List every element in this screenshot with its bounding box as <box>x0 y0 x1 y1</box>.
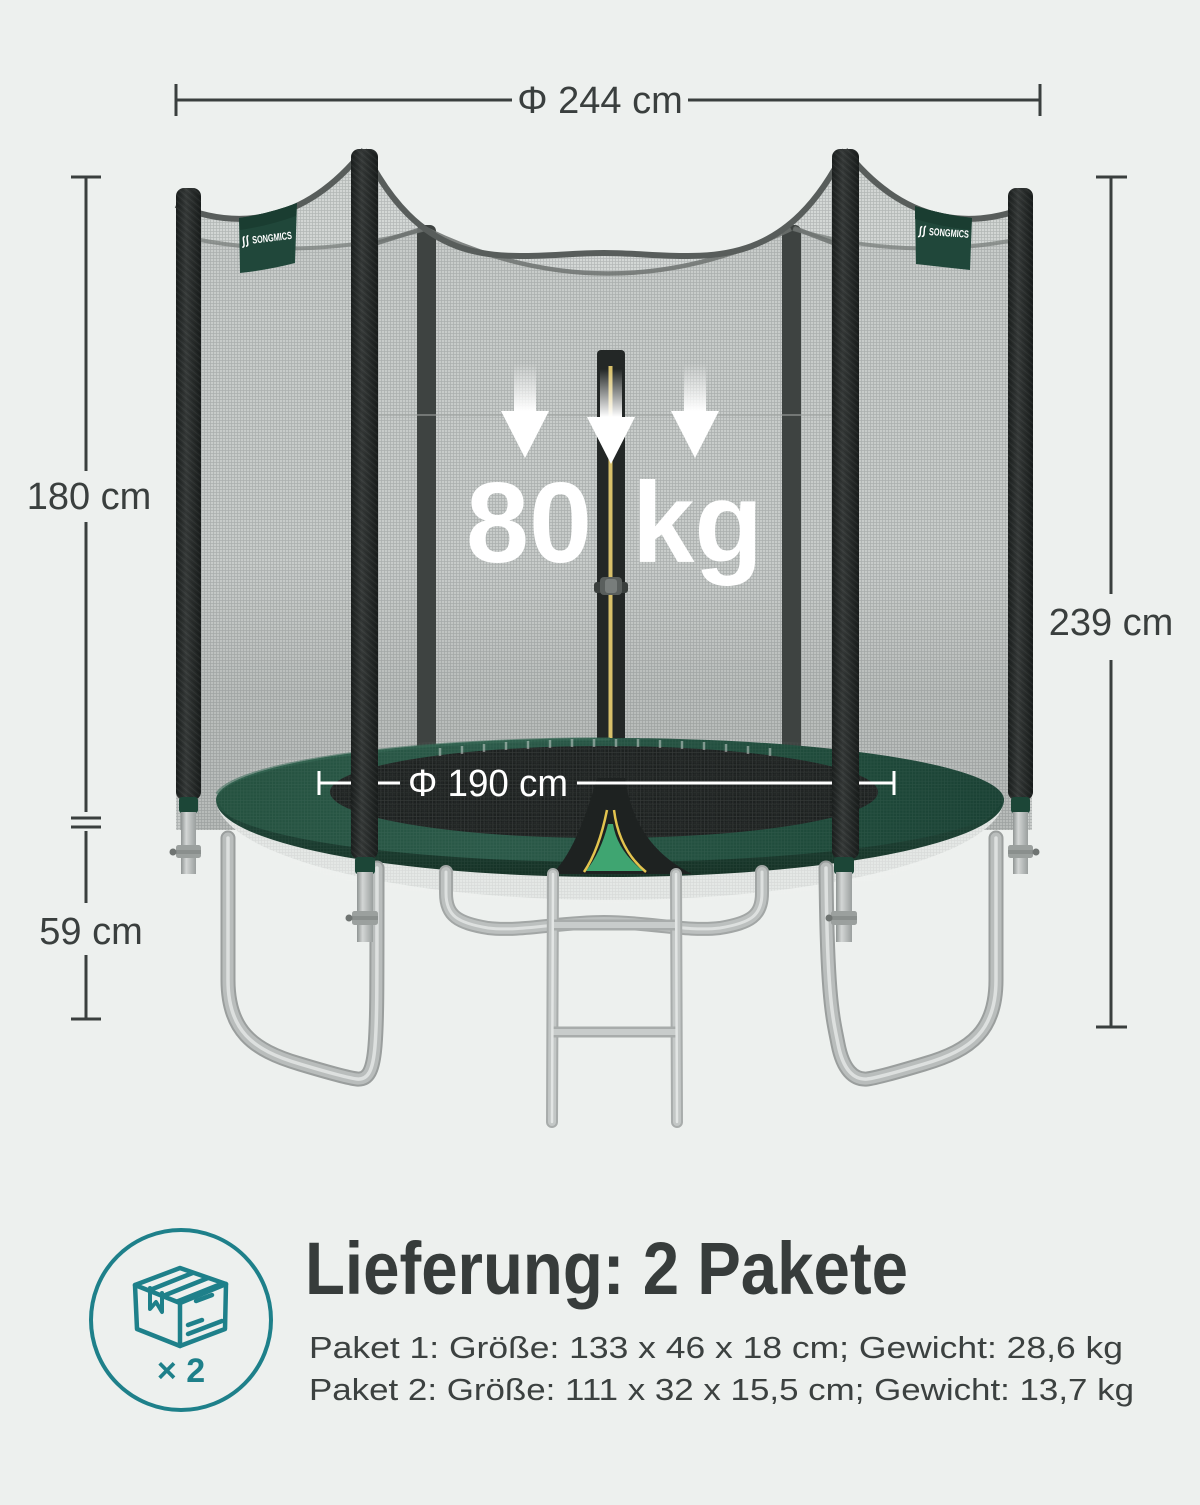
svg-text:Φ 190 cm: Φ 190 cm <box>408 763 568 805</box>
svg-text:kg: kg <box>632 460 763 587</box>
svg-text:Lieferung: 2 Pakete: Lieferung: 2 Pakete <box>305 1227 908 1310</box>
svg-text:239 cm: 239 cm <box>1049 602 1174 644</box>
svg-text:Paket 1: Größe: 133 x 46 x 18: Paket 1: Größe: 133 x 46 x 18 cm; Gewich… <box>309 1330 1123 1365</box>
svg-text:80: 80 <box>466 460 592 587</box>
svg-text:59 cm: 59 cm <box>39 911 142 953</box>
svg-text:Φ 244 cm: Φ 244 cm <box>517 80 683 122</box>
svg-text:× 2: × 2 <box>157 1352 205 1390</box>
svg-text:180 cm: 180 cm <box>27 476 152 518</box>
svg-text:Paket 2: Größe: 111 x 32 x 15,: Paket 2: Größe: 111 x 32 x 15,5 cm; Gewi… <box>309 1372 1134 1407</box>
